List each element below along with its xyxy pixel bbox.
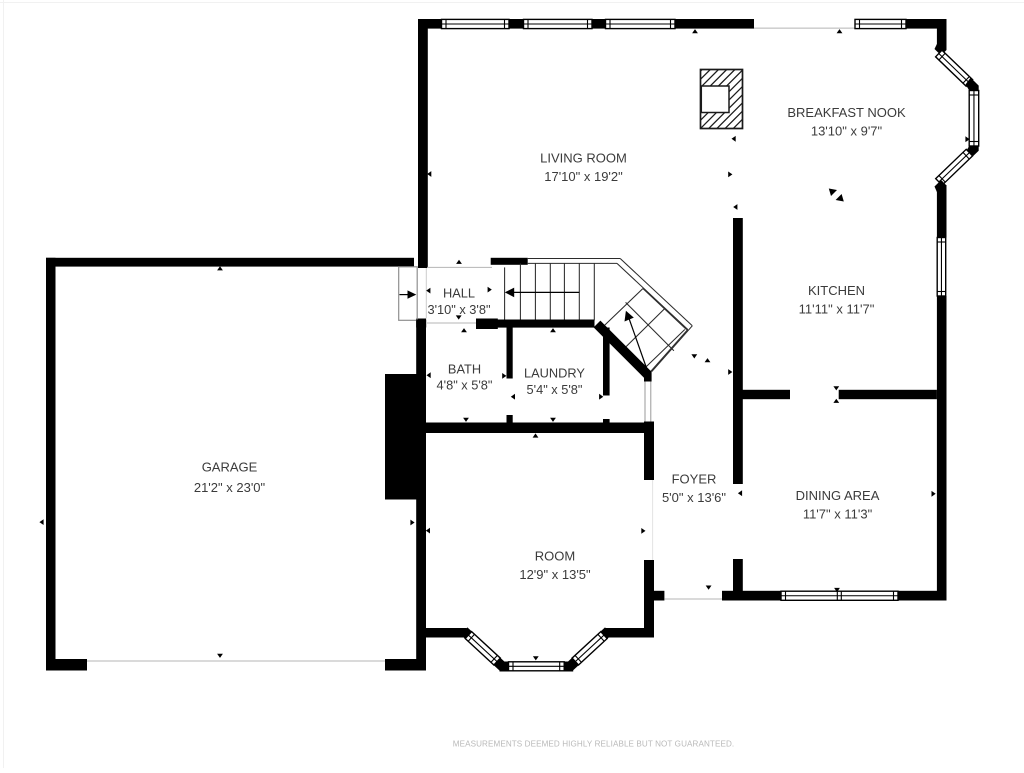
svg-text:FOYER: FOYER xyxy=(672,472,717,487)
svg-text:BREAKFAST NOOK: BREAKFAST NOOK xyxy=(787,105,906,120)
svg-text:17'10" x 19'2": 17'10" x 19'2" xyxy=(544,169,623,184)
svg-text:12'9" x 13'5": 12'9" x 13'5" xyxy=(519,567,591,582)
svg-text:3'10" x 3'8": 3'10" x 3'8" xyxy=(427,302,490,317)
svg-text:13'10" x 9'7": 13'10" x 9'7" xyxy=(811,124,883,139)
svg-text:4'8" x 5'8": 4'8" x 5'8" xyxy=(437,378,493,393)
svg-text:5'0" x 13'6": 5'0" x 13'6" xyxy=(662,490,726,505)
svg-text:5'4" x 5'8": 5'4" x 5'8" xyxy=(527,382,583,397)
svg-text:MEASUREMENTS DEEMED HIGHLY REL: MEASUREMENTS DEEMED HIGHLY RELIABLE BUT … xyxy=(453,740,735,749)
svg-text:HALL: HALL xyxy=(443,285,475,300)
svg-text:DINING AREA: DINING AREA xyxy=(796,488,880,503)
svg-text:BATH: BATH xyxy=(448,362,481,377)
svg-text:ROOM: ROOM xyxy=(535,548,575,563)
svg-text:11'11" x 11'7": 11'11" x 11'7" xyxy=(799,302,875,317)
svg-text:KITCHEN: KITCHEN xyxy=(808,283,865,298)
svg-text:LIVING ROOM: LIVING ROOM xyxy=(540,150,627,165)
svg-text:GARAGE: GARAGE xyxy=(202,460,258,475)
svg-text:LAUNDRY: LAUNDRY xyxy=(524,365,585,380)
svg-text:11'7" x 11'3": 11'7" x 11'3" xyxy=(803,507,873,522)
svg-text:21'2" x 23'0": 21'2" x 23'0" xyxy=(194,480,266,495)
